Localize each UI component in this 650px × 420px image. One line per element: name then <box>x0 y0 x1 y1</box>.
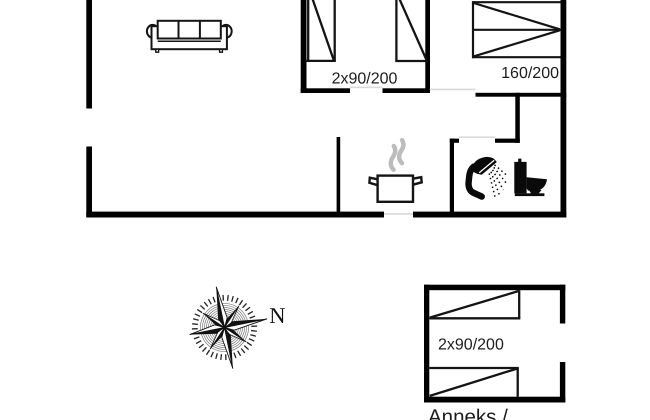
svg-text:160/200: 160/200 <box>501 65 559 82</box>
svg-text:N: N <box>269 303 285 328</box>
svg-text:2x90/200: 2x90/200 <box>438 337 504 354</box>
svg-text:Anneks /: Anneks / <box>428 406 508 420</box>
svg-text:2x90/200: 2x90/200 <box>332 71 398 88</box>
